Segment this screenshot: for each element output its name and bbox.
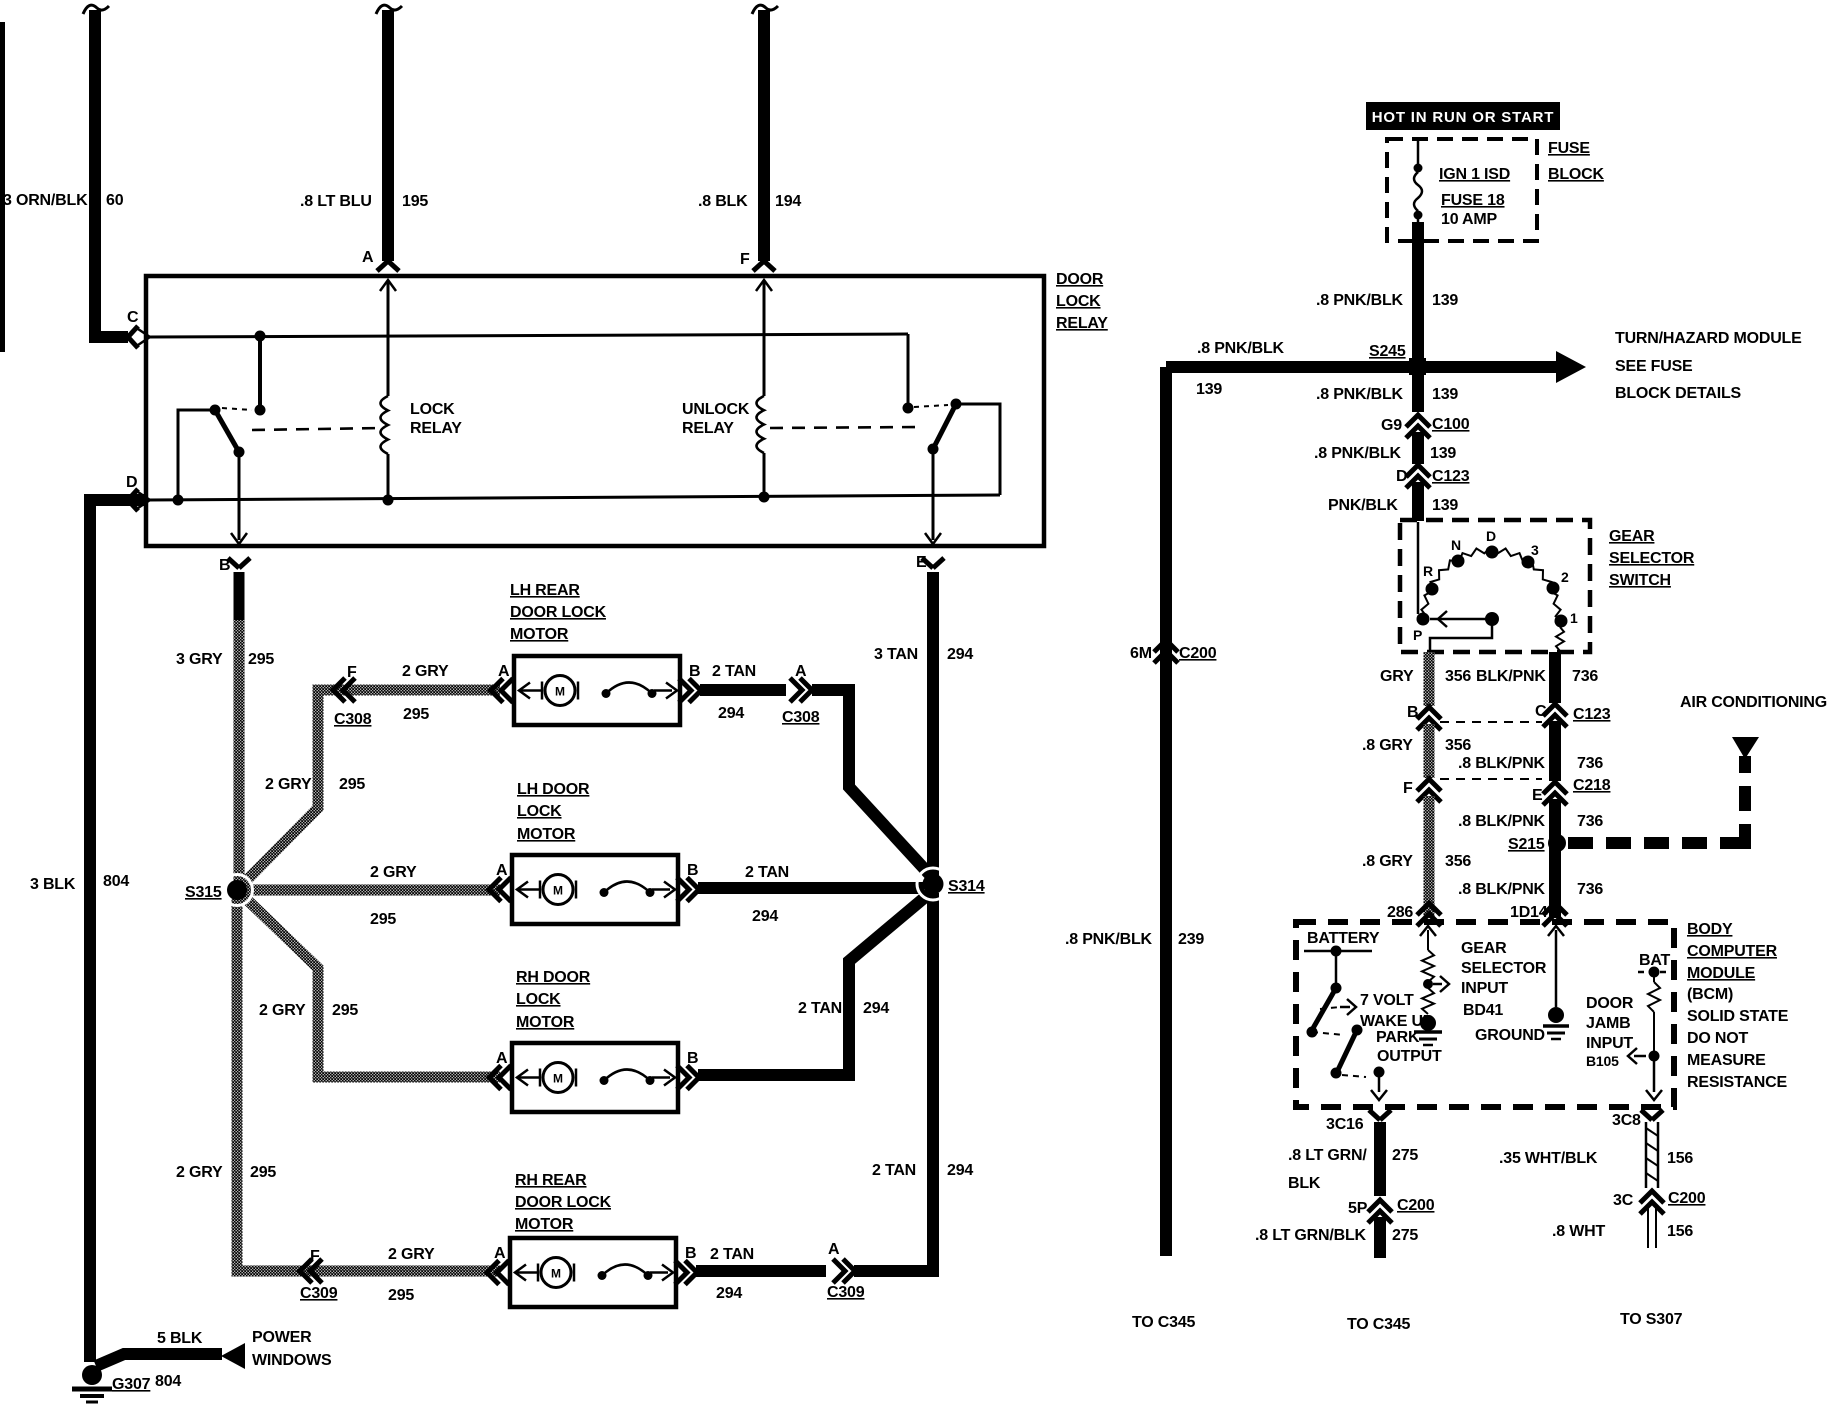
svg-text:356: 356 bbox=[1445, 737, 1471, 754]
svg-text:S215: S215 bbox=[1508, 836, 1545, 853]
svg-text:C218: C218 bbox=[1573, 777, 1611, 794]
svg-text:139: 139 bbox=[1432, 292, 1458, 309]
svg-text:GEAR: GEAR bbox=[1609, 528, 1655, 545]
svg-text:1: 1 bbox=[1570, 610, 1578, 626]
svg-text:GEAR: GEAR bbox=[1461, 940, 1507, 957]
svg-text:294: 294 bbox=[947, 646, 973, 663]
svg-text:COMPUTER: COMPUTER bbox=[1687, 943, 1778, 960]
svg-text:BLK: BLK bbox=[1288, 1175, 1321, 1192]
svg-text:C200: C200 bbox=[1668, 1190, 1706, 1207]
svg-text:LH DOOR: LH DOOR bbox=[517, 781, 590, 798]
svg-text:D: D bbox=[126, 474, 137, 491]
svg-text:3 TAN: 3 TAN bbox=[874, 646, 918, 663]
svg-text:C123: C123 bbox=[1432, 468, 1470, 485]
svg-text:RELAY: RELAY bbox=[682, 420, 734, 437]
svg-text:294: 294 bbox=[863, 1000, 889, 1017]
svg-text:BATTERY: BATTERY bbox=[1307, 930, 1380, 947]
svg-text:RH REAR: RH REAR bbox=[515, 1172, 587, 1189]
svg-text:UNLOCK: UNLOCK bbox=[682, 401, 750, 418]
svg-text:6M: 6M bbox=[1130, 645, 1152, 662]
svg-text:3C: 3C bbox=[1613, 1192, 1634, 1209]
svg-text:MOTOR: MOTOR bbox=[516, 1014, 575, 1031]
svg-text:M: M bbox=[551, 1267, 561, 1281]
svg-text:139: 139 bbox=[1432, 497, 1458, 514]
svg-text:LOCK: LOCK bbox=[410, 401, 455, 418]
svg-text:.8 BLK/PNK: .8 BLK/PNK bbox=[1458, 813, 1546, 830]
svg-text:LOCK: LOCK bbox=[1056, 293, 1101, 310]
svg-text:LOCK: LOCK bbox=[516, 991, 561, 1008]
svg-text:BODY: BODY bbox=[1687, 921, 1733, 938]
svg-text:C: C bbox=[127, 309, 139, 326]
svg-text:BAT: BAT bbox=[1639, 952, 1671, 969]
svg-text:294: 294 bbox=[716, 1285, 742, 1302]
svg-text:.8 GRY: .8 GRY bbox=[1362, 737, 1413, 754]
svg-text:2 GRY: 2 GRY bbox=[402, 663, 449, 680]
svg-text:2 TAN: 2 TAN bbox=[872, 1162, 916, 1179]
svg-text:3 ORN/BLK: 3 ORN/BLK bbox=[3, 192, 88, 209]
svg-text:LOCK: LOCK bbox=[517, 803, 562, 820]
svg-text:7 VOLT: 7 VOLT bbox=[1360, 992, 1414, 1009]
svg-text:295: 295 bbox=[339, 776, 365, 793]
svg-text:TO C345: TO C345 bbox=[1132, 1314, 1196, 1331]
svg-text:.35 WHT/BLK: .35 WHT/BLK bbox=[1499, 1150, 1598, 1167]
svg-text:.8 BLK/PNK: .8 BLK/PNK bbox=[1458, 755, 1546, 772]
svg-text:MODULE: MODULE bbox=[1687, 965, 1756, 982]
svg-text:S245: S245 bbox=[1369, 343, 1406, 360]
svg-text:.8 PNK/BLK: .8 PNK/BLK bbox=[1197, 340, 1285, 357]
svg-text:P: P bbox=[1413, 627, 1422, 643]
svg-text:2 TAN: 2 TAN bbox=[798, 1000, 842, 1017]
svg-text:MOTOR: MOTOR bbox=[517, 826, 576, 843]
svg-text:B: B bbox=[219, 557, 230, 574]
svg-text:295: 295 bbox=[332, 1002, 358, 1019]
svg-text:2 TAN: 2 TAN bbox=[712, 663, 756, 680]
svg-text:GRY: GRY bbox=[1380, 668, 1414, 685]
svg-text:.8 LT GRN/: .8 LT GRN/ bbox=[1288, 1147, 1367, 1164]
svg-text:N: N bbox=[1451, 537, 1461, 553]
svg-text:2 GRY: 2 GRY bbox=[370, 864, 417, 881]
svg-text:736: 736 bbox=[1577, 813, 1603, 830]
svg-text:PARK: PARK bbox=[1376, 1029, 1420, 1046]
svg-text:1D14: 1D14 bbox=[1510, 904, 1548, 921]
svg-text:A: A bbox=[498, 663, 510, 680]
svg-text:FUSE 18: FUSE 18 bbox=[1441, 192, 1505, 209]
svg-text:M: M bbox=[555, 685, 565, 699]
svg-text:736: 736 bbox=[1572, 668, 1598, 685]
svg-text:BD41: BD41 bbox=[1463, 1002, 1503, 1019]
svg-text:295: 295 bbox=[250, 1164, 276, 1181]
svg-text:DOOR: DOOR bbox=[1586, 995, 1634, 1012]
svg-text:(BCM): (BCM) bbox=[1687, 986, 1733, 1003]
svg-text:2 GRY: 2 GRY bbox=[176, 1164, 223, 1181]
svg-text:A: A bbox=[795, 663, 807, 680]
svg-text:POWER: POWER bbox=[252, 1329, 312, 1346]
svg-text:2 GRY: 2 GRY bbox=[388, 1246, 435, 1263]
svg-text:BLOCK DETAILS: BLOCK DETAILS bbox=[1615, 385, 1742, 402]
svg-text:804: 804 bbox=[103, 873, 129, 890]
svg-text:WINDOWS: WINDOWS bbox=[252, 1352, 332, 1369]
svg-text:SEE FUSE: SEE FUSE bbox=[1615, 358, 1693, 375]
svg-text:.8 PNK/BLK: .8 PNK/BLK bbox=[1065, 931, 1153, 948]
svg-text:C309: C309 bbox=[300, 1285, 338, 1302]
svg-text:195: 195 bbox=[402, 193, 428, 210]
svg-text:B105: B105 bbox=[1586, 1053, 1619, 1069]
svg-text:2 TAN: 2 TAN bbox=[745, 864, 789, 881]
svg-text:DOOR LOCK: DOOR LOCK bbox=[515, 1194, 612, 1211]
svg-text:E: E bbox=[1532, 787, 1543, 804]
svg-text:B: B bbox=[687, 862, 698, 879]
svg-text:A: A bbox=[362, 249, 374, 266]
svg-text:3 GRY: 3 GRY bbox=[176, 651, 223, 668]
svg-text:139: 139 bbox=[1196, 381, 1222, 398]
svg-text:294: 294 bbox=[718, 705, 744, 722]
svg-text:2 GRY: 2 GRY bbox=[265, 776, 312, 793]
svg-text:B: B bbox=[685, 1245, 696, 1262]
svg-text:LH REAR: LH REAR bbox=[510, 582, 580, 599]
svg-text:.8 PNK/BLK: .8 PNK/BLK bbox=[1314, 445, 1402, 462]
svg-text:RELAY: RELAY bbox=[1056, 315, 1108, 332]
svg-text:C309: C309 bbox=[827, 1284, 865, 1301]
svg-text:S315: S315 bbox=[185, 884, 222, 901]
svg-text:M: M bbox=[553, 1072, 563, 1086]
svg-text:D: D bbox=[1486, 528, 1496, 544]
svg-text:FUSE: FUSE bbox=[1548, 140, 1590, 157]
svg-text:F: F bbox=[310, 1248, 320, 1265]
svg-text:F: F bbox=[1403, 780, 1413, 797]
svg-text:.8 LT GRN/BLK: .8 LT GRN/BLK bbox=[1255, 1227, 1367, 1244]
svg-text:F: F bbox=[347, 664, 357, 681]
svg-text:GROUND: GROUND bbox=[1475, 1027, 1545, 1044]
svg-text:DO NOT: DO NOT bbox=[1687, 1030, 1748, 1047]
svg-text:.8 WHT: .8 WHT bbox=[1552, 1223, 1605, 1240]
svg-text:A: A bbox=[496, 862, 508, 879]
svg-text:.8 LT BLU: .8 LT BLU bbox=[300, 193, 372, 210]
svg-text:SELECTOR: SELECTOR bbox=[1461, 960, 1547, 977]
svg-text:294: 294 bbox=[947, 1162, 973, 1179]
svg-text:5 BLK: 5 BLK bbox=[157, 1330, 203, 1347]
svg-text:275: 275 bbox=[1392, 1147, 1418, 1164]
svg-text:MOTOR: MOTOR bbox=[515, 1216, 574, 1233]
svg-text:3: 3 bbox=[1531, 542, 1539, 558]
svg-text:3 BLK: 3 BLK bbox=[30, 876, 76, 893]
svg-text:2 TAN: 2 TAN bbox=[710, 1246, 754, 1263]
svg-text:RELAY: RELAY bbox=[410, 420, 462, 437]
svg-text:INPUT: INPUT bbox=[1586, 1035, 1633, 1052]
svg-text:MOTOR: MOTOR bbox=[510, 626, 569, 643]
svg-text:736: 736 bbox=[1577, 881, 1603, 898]
svg-text:PNK/BLK: PNK/BLK bbox=[1328, 497, 1398, 514]
svg-text:.8 BLK/PNK: .8 BLK/PNK bbox=[1458, 881, 1546, 898]
svg-text:E: E bbox=[916, 554, 927, 571]
svg-text:DOOR: DOOR bbox=[1056, 271, 1104, 288]
svg-text:DOOR LOCK: DOOR LOCK bbox=[510, 604, 607, 621]
svg-text:156: 156 bbox=[1667, 1223, 1693, 1240]
svg-text:60: 60 bbox=[106, 192, 124, 209]
svg-text:D: D bbox=[1396, 468, 1407, 485]
svg-text:S314: S314 bbox=[948, 878, 985, 895]
svg-text:295: 295 bbox=[388, 1287, 414, 1304]
svg-text:TURN/HAZARD MODULE: TURN/HAZARD MODULE bbox=[1615, 330, 1802, 347]
svg-text:C123: C123 bbox=[1573, 706, 1611, 723]
svg-text:INPUT: INPUT bbox=[1461, 980, 1508, 997]
svg-text:736: 736 bbox=[1577, 755, 1603, 772]
svg-text:3C16: 3C16 bbox=[1326, 1116, 1364, 1133]
svg-text:TO C345: TO C345 bbox=[1347, 1316, 1411, 1333]
svg-text:156: 156 bbox=[1667, 1150, 1693, 1167]
svg-text:295: 295 bbox=[248, 651, 274, 668]
svg-text:.8 GRY: .8 GRY bbox=[1362, 853, 1413, 870]
svg-text:BLK/PNK: BLK/PNK bbox=[1476, 668, 1546, 685]
svg-text:356: 356 bbox=[1445, 668, 1471, 685]
svg-text:C308: C308 bbox=[334, 711, 372, 728]
svg-text:295: 295 bbox=[403, 706, 429, 723]
svg-text:C308: C308 bbox=[782, 709, 820, 726]
svg-text:C200: C200 bbox=[1179, 645, 1217, 662]
svg-text:B: B bbox=[687, 1050, 698, 1067]
svg-text:A: A bbox=[496, 1050, 508, 1067]
svg-text:.8 PNK/BLK: .8 PNK/BLK bbox=[1316, 292, 1404, 309]
svg-text:RH DOOR: RH DOOR bbox=[516, 969, 591, 986]
svg-text:G9: G9 bbox=[1381, 417, 1402, 434]
svg-text:HOT IN RUN OR START: HOT IN RUN OR START bbox=[1372, 109, 1554, 126]
svg-text:AIR CONDITIONING: AIR CONDITIONING bbox=[1680, 694, 1827, 711]
svg-text:A: A bbox=[828, 1241, 840, 1258]
svg-text:194: 194 bbox=[775, 193, 801, 210]
svg-text:MEASURE: MEASURE bbox=[1687, 1052, 1766, 1069]
svg-text:804: 804 bbox=[155, 1373, 181, 1390]
svg-text:139: 139 bbox=[1432, 386, 1458, 403]
svg-text:TO S307: TO S307 bbox=[1620, 1311, 1683, 1328]
svg-text:275: 275 bbox=[1392, 1227, 1418, 1244]
svg-text:IGN 1 ISD: IGN 1 ISD bbox=[1439, 166, 1510, 183]
svg-text:B: B bbox=[1407, 704, 1418, 721]
svg-text:3C8: 3C8 bbox=[1612, 1112, 1641, 1129]
svg-text:356: 356 bbox=[1445, 853, 1471, 870]
svg-text:2 GRY: 2 GRY bbox=[259, 1002, 306, 1019]
svg-text:SWITCH: SWITCH bbox=[1609, 572, 1671, 589]
svg-text:C: C bbox=[1535, 703, 1547, 720]
svg-text:295: 295 bbox=[370, 911, 396, 928]
svg-text:5P: 5P bbox=[1348, 1200, 1368, 1217]
svg-text:SOLID STATE: SOLID STATE bbox=[1687, 1008, 1789, 1025]
svg-text:10 AMP: 10 AMP bbox=[1441, 211, 1498, 228]
svg-text:286: 286 bbox=[1387, 904, 1413, 921]
svg-text:M: M bbox=[553, 884, 563, 898]
svg-text:A: A bbox=[494, 1245, 506, 1262]
svg-text:G307: G307 bbox=[112, 1376, 151, 1393]
svg-text:R: R bbox=[1423, 563, 1433, 579]
svg-text:SELECTOR: SELECTOR bbox=[1609, 550, 1695, 567]
svg-text:C200: C200 bbox=[1397, 1197, 1435, 1214]
svg-text:BLOCK: BLOCK bbox=[1548, 166, 1605, 183]
svg-text:294: 294 bbox=[752, 908, 778, 925]
svg-text:JAMB: JAMB bbox=[1586, 1015, 1631, 1032]
svg-text:.8 PNK/BLK: .8 PNK/BLK bbox=[1316, 386, 1404, 403]
svg-text:F: F bbox=[740, 251, 750, 268]
svg-text:OUTPUT: OUTPUT bbox=[1377, 1048, 1442, 1065]
svg-text:239: 239 bbox=[1178, 931, 1204, 948]
svg-text:RESISTANCE: RESISTANCE bbox=[1687, 1074, 1787, 1091]
svg-text:.8 BLK: .8 BLK bbox=[698, 193, 748, 210]
svg-text:B: B bbox=[689, 663, 700, 680]
svg-text:C100: C100 bbox=[1432, 416, 1470, 433]
svg-text:139: 139 bbox=[1430, 445, 1456, 462]
svg-text:2: 2 bbox=[1561, 569, 1569, 585]
